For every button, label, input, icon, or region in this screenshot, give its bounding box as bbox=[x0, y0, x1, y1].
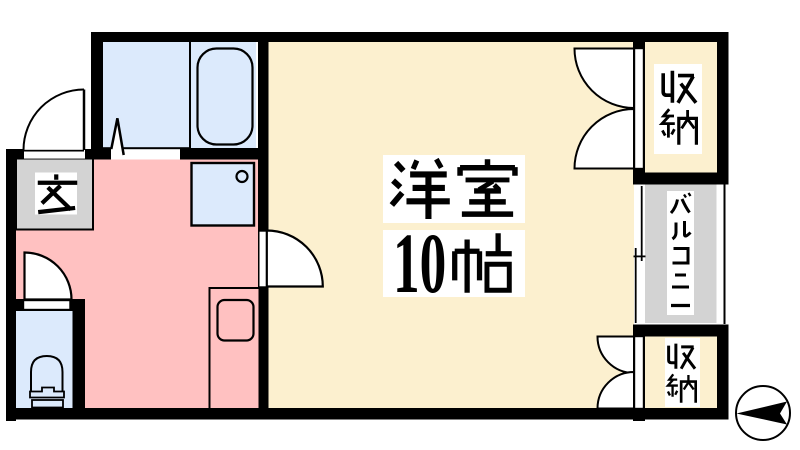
svg-text:10: 10 bbox=[393, 216, 446, 311]
